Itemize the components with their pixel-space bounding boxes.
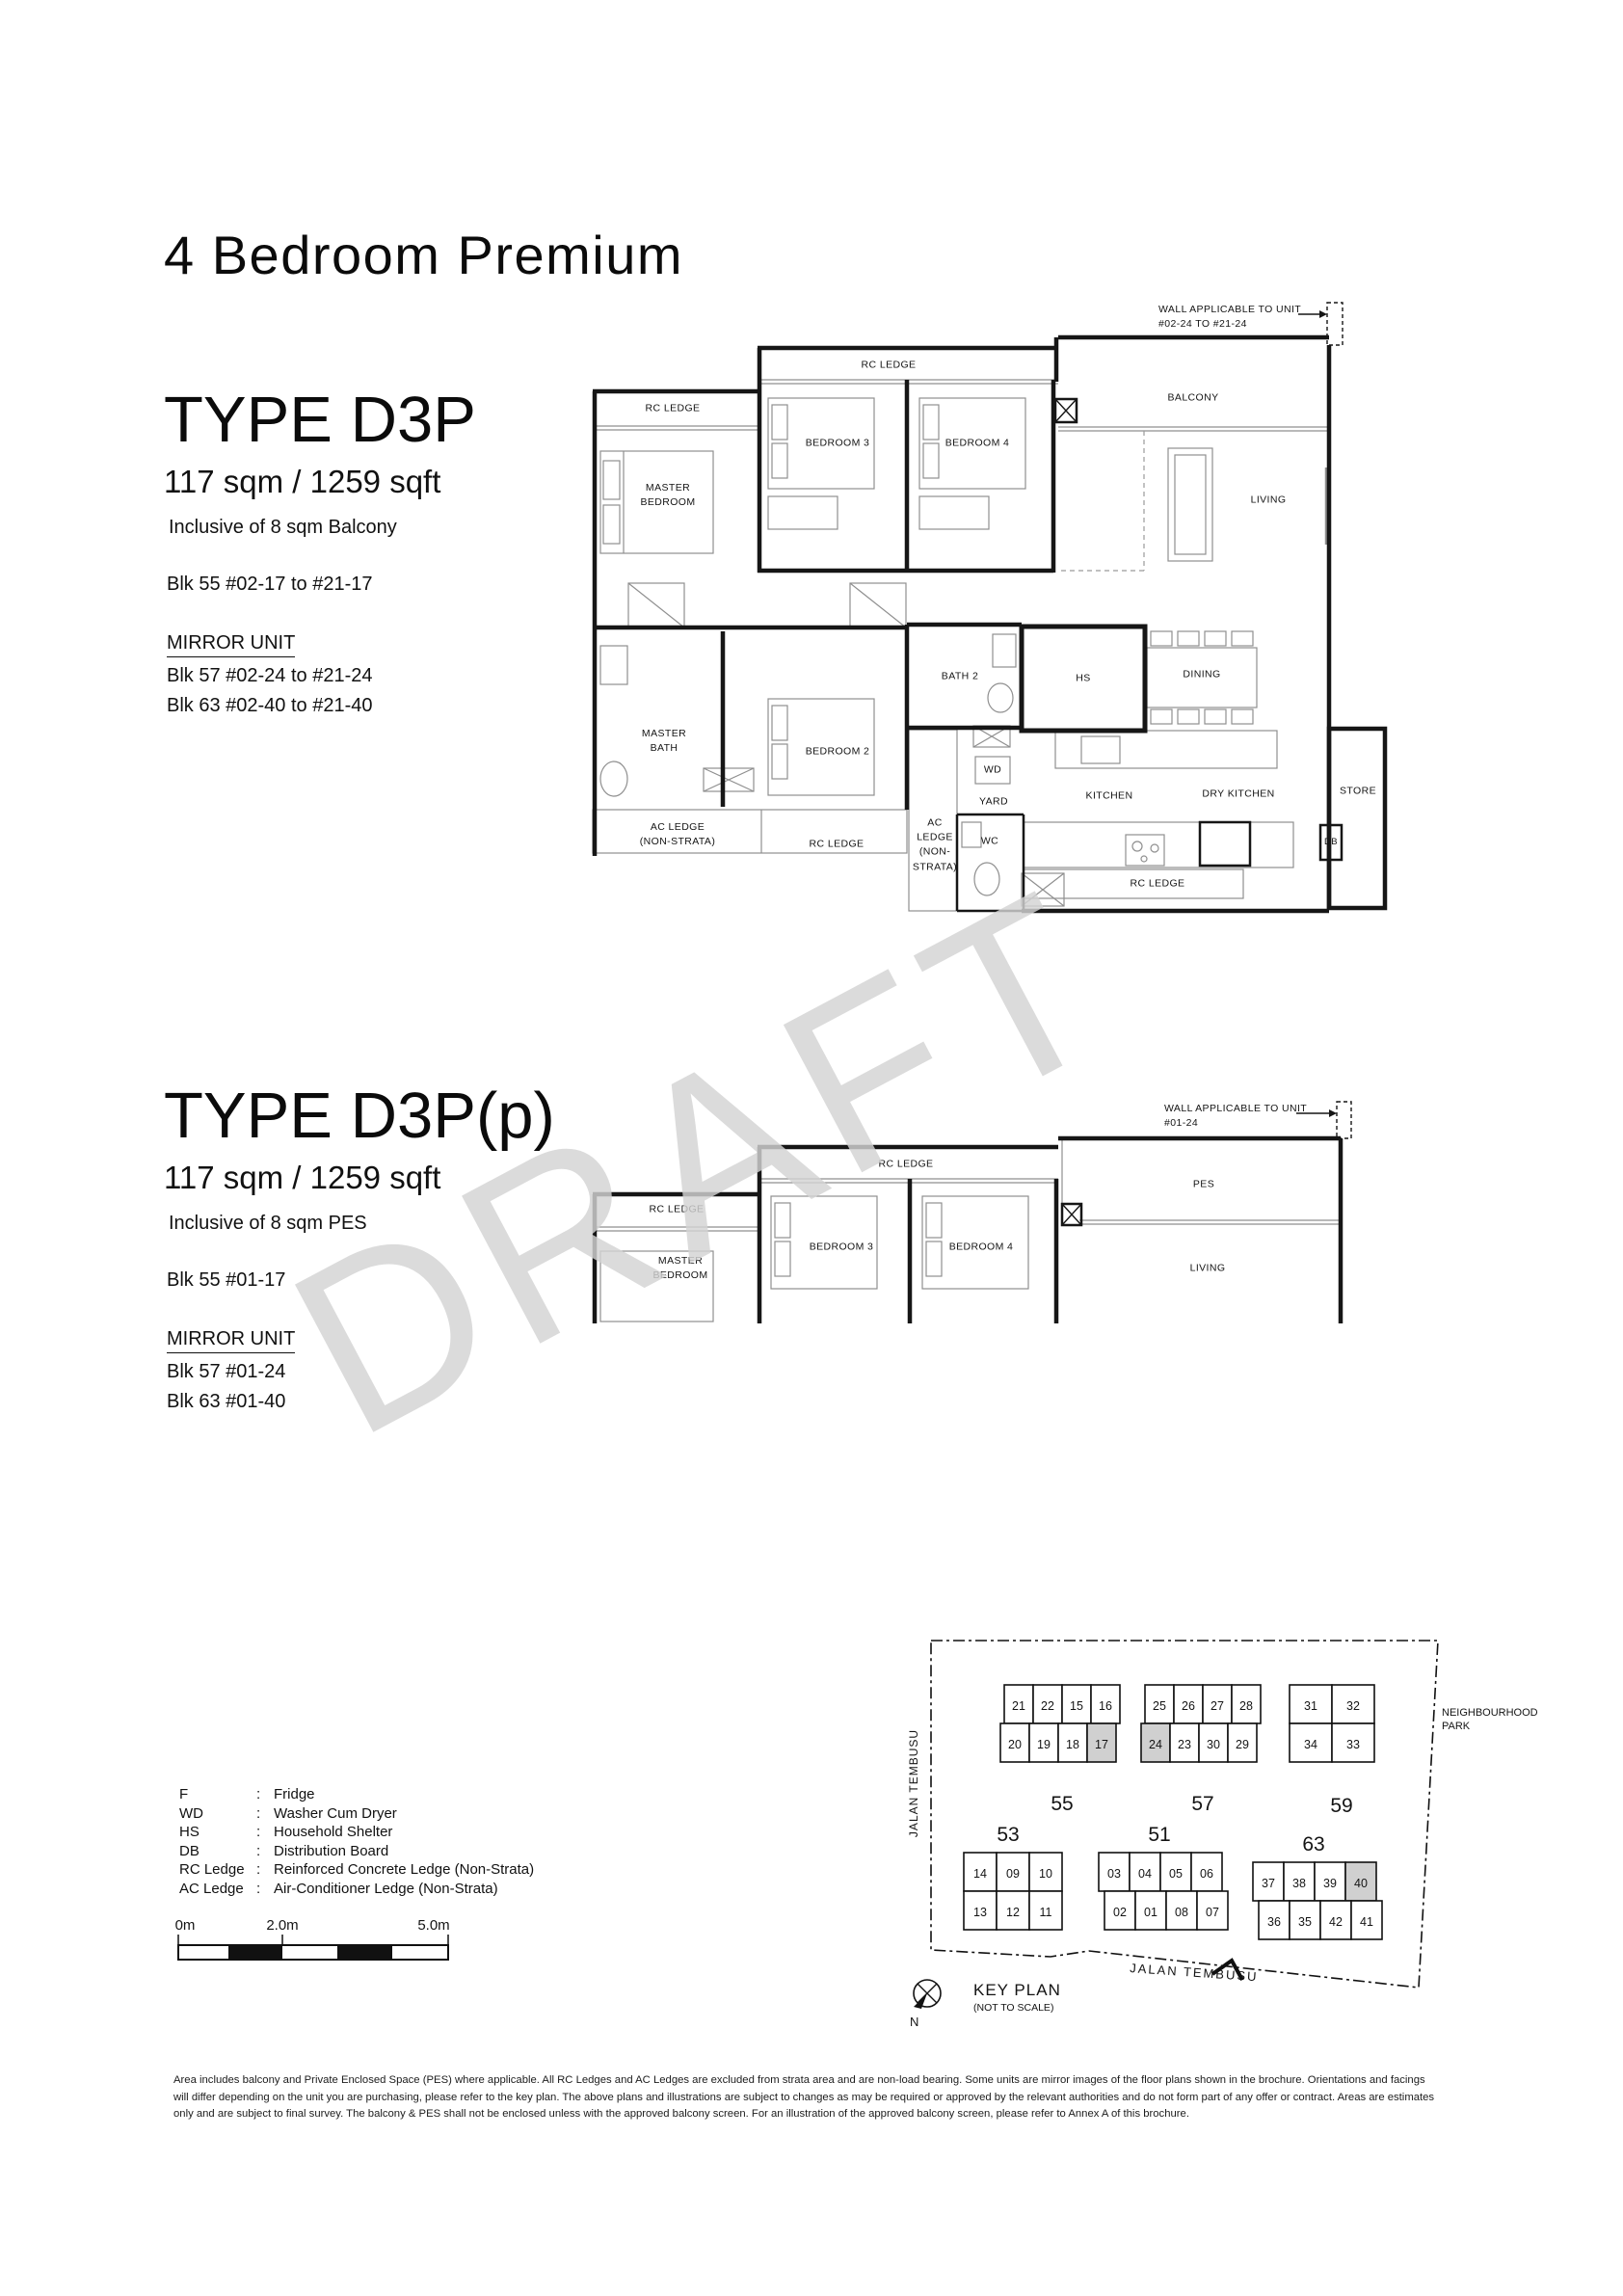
keyplan-title: KEY PLAN <box>973 1981 1061 1999</box>
keyplan-block-number: 59 <box>1330 1795 1352 1817</box>
mirror-block-range: Blk 63 #01-40 <box>164 1391 578 1413</box>
partitions <box>1062 1204 1081 1225</box>
keyplan-subtitle: (NOT TO SCALE) <box>973 2002 1053 2014</box>
legend-desc: Fridge <box>274 1785 315 1804</box>
north-label: N <box>910 2015 918 2029</box>
room-label: BEDROOM 4 <box>949 1240 1014 1254</box>
mirror-block-range: Blk 57 #02-24 to #21-24 <box>164 665 578 687</box>
unit-block-range: Blk 55 #02-17 to #21-17 <box>164 574 578 596</box>
room-label: LIVING <box>1190 1261 1226 1275</box>
keyplan-unit-number: 23 <box>1178 1738 1191 1751</box>
scale-segment-black-1 <box>228 1945 282 1960</box>
room-label: DINING <box>1183 667 1220 681</box>
mirror-unit-list: Blk 57 #02-24 to #21-24Blk 63 #02-40 to … <box>164 665 578 717</box>
room-label: DB <box>1324 836 1338 849</box>
scale-bar: 0m 2.0m 5.0m <box>173 1916 472 1974</box>
mirror-block-range: Blk 57 #01-24 <box>164 1361 578 1383</box>
keyplan-unit-number: 21 <box>1012 1699 1025 1713</box>
room-label: BATH 2 <box>942 669 978 683</box>
keyplan-unit-number: 35 <box>1298 1915 1312 1929</box>
scale-bar-body <box>178 1945 448 1960</box>
legend-row: DB:Distribution Board <box>179 1842 534 1861</box>
floorplan-d3pp: WALL APPLICABLE TO UNIT #01-24RC LEDGERC… <box>569 1092 1397 1323</box>
room-label: BEDROOM 3 <box>810 1240 874 1254</box>
keyplan-unit-number: 05 <box>1169 1867 1183 1881</box>
room-label: MASTER BATH <box>642 727 686 756</box>
dashed-boundaries <box>1060 431 1144 571</box>
legend-row: F:Fridge <box>179 1785 534 1804</box>
legend-row: RC Ledge:Reinforced Concrete Ledge (Non-… <box>179 1860 534 1880</box>
legend-desc: Reinforced Concrete Ledge (Non-Strata) <box>274 1860 534 1880</box>
keyplan-unit-number: 39 <box>1323 1877 1337 1890</box>
keyplan-unit-number: 31 <box>1304 1699 1317 1713</box>
mirror-block-range: Blk 63 #02-40 to #21-40 <box>164 695 578 717</box>
room-label: RC LEDGE <box>1131 876 1185 891</box>
keyplan-unit-number: 03 <box>1107 1867 1121 1881</box>
mirror-unit-heading: MIRROR UNIT <box>164 632 578 657</box>
legend-desc: Washer Cum Dryer <box>274 1804 397 1824</box>
park-label-line2: PARK <box>1442 1721 1471 1732</box>
room-label: RC LEDGE <box>862 358 917 372</box>
room-label: KITCHEN <box>1086 788 1133 803</box>
room-label: WALL APPLICABLE TO UNIT #02-24 TO #21-24 <box>1158 303 1301 332</box>
keyplan-unit-number: 41 <box>1360 1915 1373 1929</box>
legend-abbr: WD <box>179 1804 256 1824</box>
scale-segment-black-2 <box>337 1945 392 1960</box>
keyplan-unit-number: 07 <box>1206 1906 1219 1919</box>
room-label: BEDROOM 4 <box>945 436 1010 450</box>
furniture-and-ledges <box>593 1138 1341 1322</box>
keyplan-unit-number: 08 <box>1175 1906 1188 1919</box>
legend-colon: : <box>256 1880 274 1899</box>
legend-abbr: DB <box>179 1842 256 1861</box>
keyplan-unit-number: 26 <box>1182 1699 1195 1713</box>
floorplan-brochure-page: 4 Bedroom Premium TYPE D3P 117 sqm / 125… <box>0 0 1623 2296</box>
keyplan-unit-number: 36 <box>1267 1915 1281 1929</box>
keyplan-unit-number: 09 <box>1006 1867 1020 1881</box>
unit-area: 117 sqm / 1259 sqft <box>164 1160 578 1196</box>
room-label: DRY KITCHEN <box>1202 787 1274 801</box>
keyplan-unit-number: 27 <box>1211 1699 1224 1713</box>
room-label: BALCONY <box>1168 390 1219 405</box>
park-label-line1: NEIGHBOURHOOD <box>1442 1707 1538 1719</box>
legend-colon: : <box>256 1842 274 1861</box>
keyplan-block-number: 63 <box>1302 1833 1324 1855</box>
key-plan: 2122151620191817552526272824233029573132… <box>906 1629 1581 2043</box>
room-label: PES <box>1193 1177 1214 1191</box>
keyplan-unit-number: 11 <box>1040 1906 1052 1919</box>
room-label: AC LEDGE (NON- STRATA) <box>913 816 957 875</box>
legend-desc: Air-Conditioner Ledge (Non-Strata) <box>274 1880 498 1899</box>
scale-ticks <box>178 1935 448 1945</box>
keyplan-unit-number: 19 <box>1037 1738 1051 1751</box>
keyplan-unit-number: 15 <box>1070 1699 1083 1713</box>
unit-block-range: Blk 55 #01-17 <box>164 1269 578 1292</box>
keyplan-unit-number: 18 <box>1066 1738 1079 1751</box>
keyplan-unit-number: 37 <box>1262 1877 1275 1890</box>
keyplan-unit-number: 06 <box>1200 1867 1213 1881</box>
room-label: LIVING <box>1251 493 1287 507</box>
keyplan-unit-number: 16 <box>1099 1699 1112 1713</box>
keyplan-unit-number: 28 <box>1239 1699 1253 1713</box>
keyplan-unit-number: 02 <box>1113 1906 1127 1919</box>
room-label: HS <box>1076 671 1090 685</box>
partitions <box>957 399 1342 911</box>
unit-inclusive-note: Inclusive of 8 sqm Balcony <box>164 517 578 539</box>
legend-colon: : <box>256 1785 274 1804</box>
keyplan-unit-number: 14 <box>973 1867 987 1881</box>
legend-row: HS:Household Shelter <box>179 1823 534 1842</box>
type-d3pp-info: TYPE D3P(p) 117 sqm / 1259 sqft Inclusiv… <box>164 1083 578 1413</box>
keyplan-unit-number: 33 <box>1346 1738 1360 1751</box>
room-label: STORE <box>1340 784 1376 798</box>
keyplan-unit-number: 32 <box>1346 1699 1360 1713</box>
legend-desc: Household Shelter <box>274 1823 392 1842</box>
legend-abbr: RC Ledge <box>179 1860 256 1880</box>
room-label: AC LEDGE (NON-STRATA) <box>640 820 716 849</box>
scale-label-2m: 2.0m <box>266 1917 298 1934</box>
legend-row: WD:Washer Cum Dryer <box>179 1804 534 1824</box>
room-label: WALL APPLICABLE TO UNIT #01-24 <box>1164 1102 1307 1131</box>
keyplan-unit-number: 01 <box>1144 1906 1157 1919</box>
road-label-left: JALAN TEMBUSU <box>907 1729 920 1837</box>
room-label: RC LEDGE <box>879 1157 934 1171</box>
mirror-unit-list: Blk 57 #01-24Blk 63 #01-40 <box>164 1361 578 1413</box>
room-label: BEDROOM 2 <box>806 744 870 759</box>
room-label: YARD <box>979 794 1008 809</box>
keyplan-unit-number: 40 <box>1354 1877 1368 1890</box>
room-label: BEDROOM 3 <box>806 436 870 450</box>
type-d3p-info: TYPE D3P 117 sqm / 1259 sqft Inclusive o… <box>164 387 578 717</box>
keyplan-unit-number: 34 <box>1304 1738 1317 1751</box>
keyplan-block-number: 53 <box>997 1824 1019 1846</box>
scale-label-5m: 5.0m <box>417 1917 449 1934</box>
keyplan-unit-number: 24 <box>1149 1738 1162 1751</box>
keyplan-unit-number: 29 <box>1236 1738 1249 1751</box>
legend-desc: Distribution Board <box>274 1842 388 1861</box>
keyplan-unit-number: 13 <box>973 1906 987 1919</box>
keyplan-blocks: 2122151620191817552526272824233029573132… <box>964 1685 1382 1939</box>
page-title: 4 Bedroom Premium <box>164 224 683 286</box>
room-label: RC LEDGE <box>810 837 865 851</box>
room-label: WC <box>981 834 998 848</box>
floorplan-d3p: WALL APPLICABLE TO UNIT #02-24 TO #21-24… <box>569 289 1397 954</box>
keyplan-unit-number: 22 <box>1041 1699 1054 1713</box>
legend-colon: : <box>256 1860 274 1880</box>
keyplan-unit-number: 10 <box>1039 1867 1052 1881</box>
unit-area: 117 sqm / 1259 sqft <box>164 464 578 500</box>
unit-type-name: TYPE D3P(p) <box>164 1083 578 1148</box>
disclaimer-text: Area includes balcony and Private Enclos… <box>173 2072 1438 2123</box>
scale-label-0m: 0m <box>175 1917 196 1934</box>
legend-colon: : <box>256 1823 274 1842</box>
legend-abbr: F <box>179 1785 256 1804</box>
room-label: MASTER BEDROOM <box>640 481 695 510</box>
floorplan-d3p-drawing <box>569 289 1397 954</box>
room-label: RC LEDGE <box>646 401 701 415</box>
legend: F:FridgeWD:Washer Cum DryerHS:Household … <box>179 1785 534 1898</box>
keyplan-unit-number: 12 <box>1006 1906 1020 1919</box>
legend-row: AC Ledge:Air-Conditioner Ledge (Non-Stra… <box>179 1880 534 1899</box>
keyplan-block-number: 55 <box>1051 1793 1073 1815</box>
keyplan-block-number: 51 <box>1148 1824 1170 1846</box>
unit-inclusive-note: Inclusive of 8 sqm PES <box>164 1213 578 1235</box>
unit-type-name: TYPE D3P <box>164 387 578 452</box>
keyplan-unit-number: 42 <box>1329 1915 1343 1929</box>
room-label: RC LEDGE <box>650 1202 705 1216</box>
keyplan-unit-number: 04 <box>1138 1867 1152 1881</box>
keyplan-unit-number: 38 <box>1292 1877 1306 1890</box>
room-label: MASTER BEDROOM <box>652 1254 707 1283</box>
keyplan-unit-number: 30 <box>1207 1738 1220 1751</box>
keyplan-unit-number: 25 <box>1153 1699 1166 1713</box>
legend-colon: : <box>256 1804 274 1824</box>
keyplan-unit-number: 20 <box>1008 1738 1022 1751</box>
legend-abbr: AC Ledge <box>179 1880 256 1899</box>
room-label: WD <box>984 762 1001 777</box>
legend-abbr: HS <box>179 1823 256 1842</box>
keyplan-block-number: 57 <box>1191 1793 1213 1815</box>
mirror-unit-heading: MIRROR UNIT <box>164 1328 578 1353</box>
keyplan-unit-number: 17 <box>1095 1738 1108 1751</box>
north-compass-icon <box>914 1980 941 2009</box>
